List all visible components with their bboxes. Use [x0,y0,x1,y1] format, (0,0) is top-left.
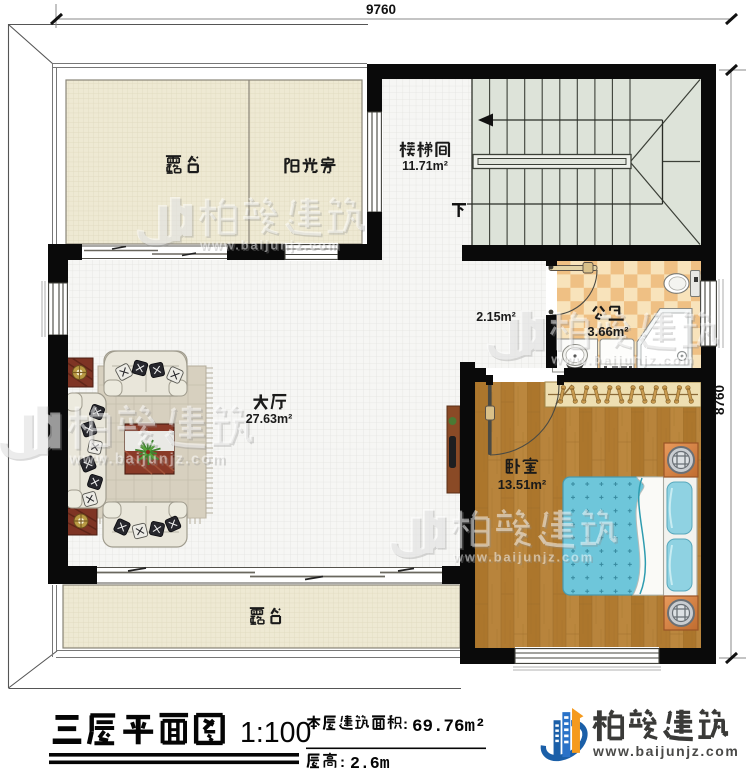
svg-text:www.baijunjz.com: www.baijunjz.com [68,452,227,468]
svg-text:www.baijunjz.com: www.baijunjz.com [592,743,739,759]
svg-text:8760: 8760 [712,385,727,415]
svg-text:www.baijunjz.com: www.baijunjz.com [550,352,695,367]
svg-text:11.71m²: 11.71m² [402,159,448,173]
svg-text:9760: 9760 [366,2,396,17]
svg-text:www.baijunjz.com: www.baijunjz.com [452,550,594,565]
svg-text:2.6m: 2.6m [350,754,390,773]
svg-text:1:100: 1:100 [240,717,311,749]
svg-text:www.baijunjz.com: www.baijunjz.com [199,238,341,253]
svg-text:3.66m²: 3.66m² [587,324,629,339]
svg-text::: : [403,716,408,733]
svg-text:27.63m²: 27.63m² [246,412,293,426]
svg-text::: : [340,754,345,771]
svg-text:2.15m²: 2.15m² [476,310,516,324]
svg-text:69.76m²: 69.76m² [412,717,486,737]
svg-text:13.51m²: 13.51m² [498,477,547,492]
